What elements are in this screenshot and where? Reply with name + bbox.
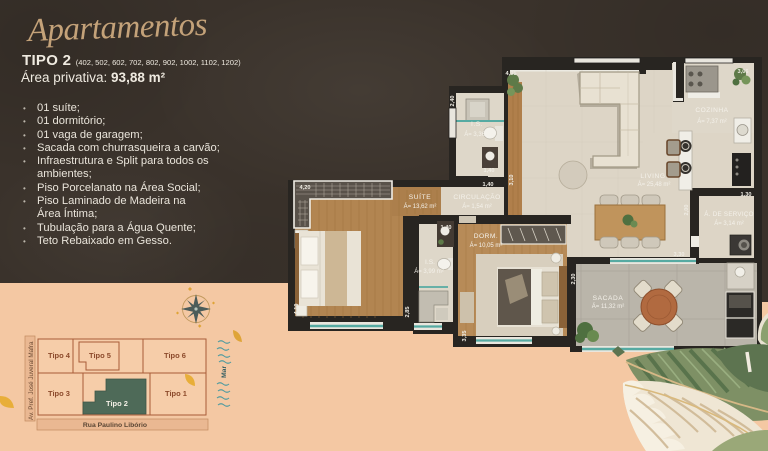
svg-text:Á= 11,32 m²: Á= 11,32 m² [592, 303, 624, 310]
svg-text:Á= 25,48 m²: Á= 25,48 m² [638, 181, 671, 188]
svg-text:Á= 3,14 m²: Á= 3,14 m² [714, 220, 744, 227]
svg-text:Tipo 4: Tipo 4 [48, 351, 71, 360]
svg-text:Á. DE SERVIÇO: Á. DE SERVIÇO [704, 211, 754, 218]
svg-text:3,06: 3,06 [738, 69, 749, 75]
svg-text:4,95: 4,95 [506, 71, 517, 77]
svg-text:SUÍTE: SUÍTE [409, 192, 431, 201]
svg-text:2,40: 2,40 [450, 96, 456, 107]
svg-text:2,00: 2,00 [684, 205, 690, 216]
svg-text:4,20: 4,20 [300, 185, 311, 191]
svg-text:SACADA: SACADA [593, 295, 624, 302]
svg-text:Á= 7,37 m²: Á= 7,37 m² [697, 118, 727, 125]
svg-text:Á= 3,99 m²: Á= 3,99 m² [414, 268, 444, 275]
svg-text:I.S.: I.S. [471, 121, 483, 128]
svg-text:1,40: 1,40 [483, 182, 494, 188]
svg-text:3,35: 3,35 [462, 331, 468, 342]
svg-text:Rua Paulino Libório: Rua Paulino Libório [83, 422, 147, 429]
svg-text:1,40: 1,40 [441, 225, 452, 231]
svg-text:CIRCULAÇÃO: CIRCULAÇÃO [453, 192, 500, 201]
svg-text:Tipo 3: Tipo 3 [48, 389, 70, 398]
svg-text:Á= 3,36 m²: Á= 3,36 m² [464, 131, 494, 138]
svg-text:Tipo 6: Tipo 6 [164, 351, 186, 360]
svg-text:Tipo 5: Tipo 5 [89, 351, 111, 360]
svg-text:I.S.: I.S. [425, 259, 435, 266]
svg-text:COZINHA: COZINHA [695, 107, 728, 114]
svg-text:Tipo 2: Tipo 2 [106, 399, 128, 408]
svg-text:Mar: Mar [221, 366, 228, 378]
svg-text:Á= 13,62 m²: Á= 13,62 m² [404, 203, 437, 210]
svg-text:1,40: 1,40 [484, 168, 495, 174]
svg-text:Á= 1,54 m²: Á= 1,54 m² [462, 203, 492, 210]
svg-text:2,30: 2,30 [571, 274, 577, 285]
svg-text:2,85: 2,85 [405, 307, 411, 318]
svg-text:4,10: 4,10 [294, 304, 300, 315]
svg-text:DORM.: DORM. [474, 233, 498, 240]
svg-text:LIVING: LIVING [640, 173, 665, 180]
svg-text:Á= 10,05 m²: Á= 10,05 m² [470, 242, 503, 249]
svg-text:1,30: 1,30 [741, 192, 752, 198]
svg-text:3,30: 3,30 [674, 252, 685, 258]
svg-text:3,10: 3,10 [509, 175, 515, 186]
svg-text:Av. Pref. José Juveral Mafra: Av. Pref. José Juveral Mafra [28, 341, 35, 420]
svg-text:Tipo 1: Tipo 1 [165, 389, 187, 398]
